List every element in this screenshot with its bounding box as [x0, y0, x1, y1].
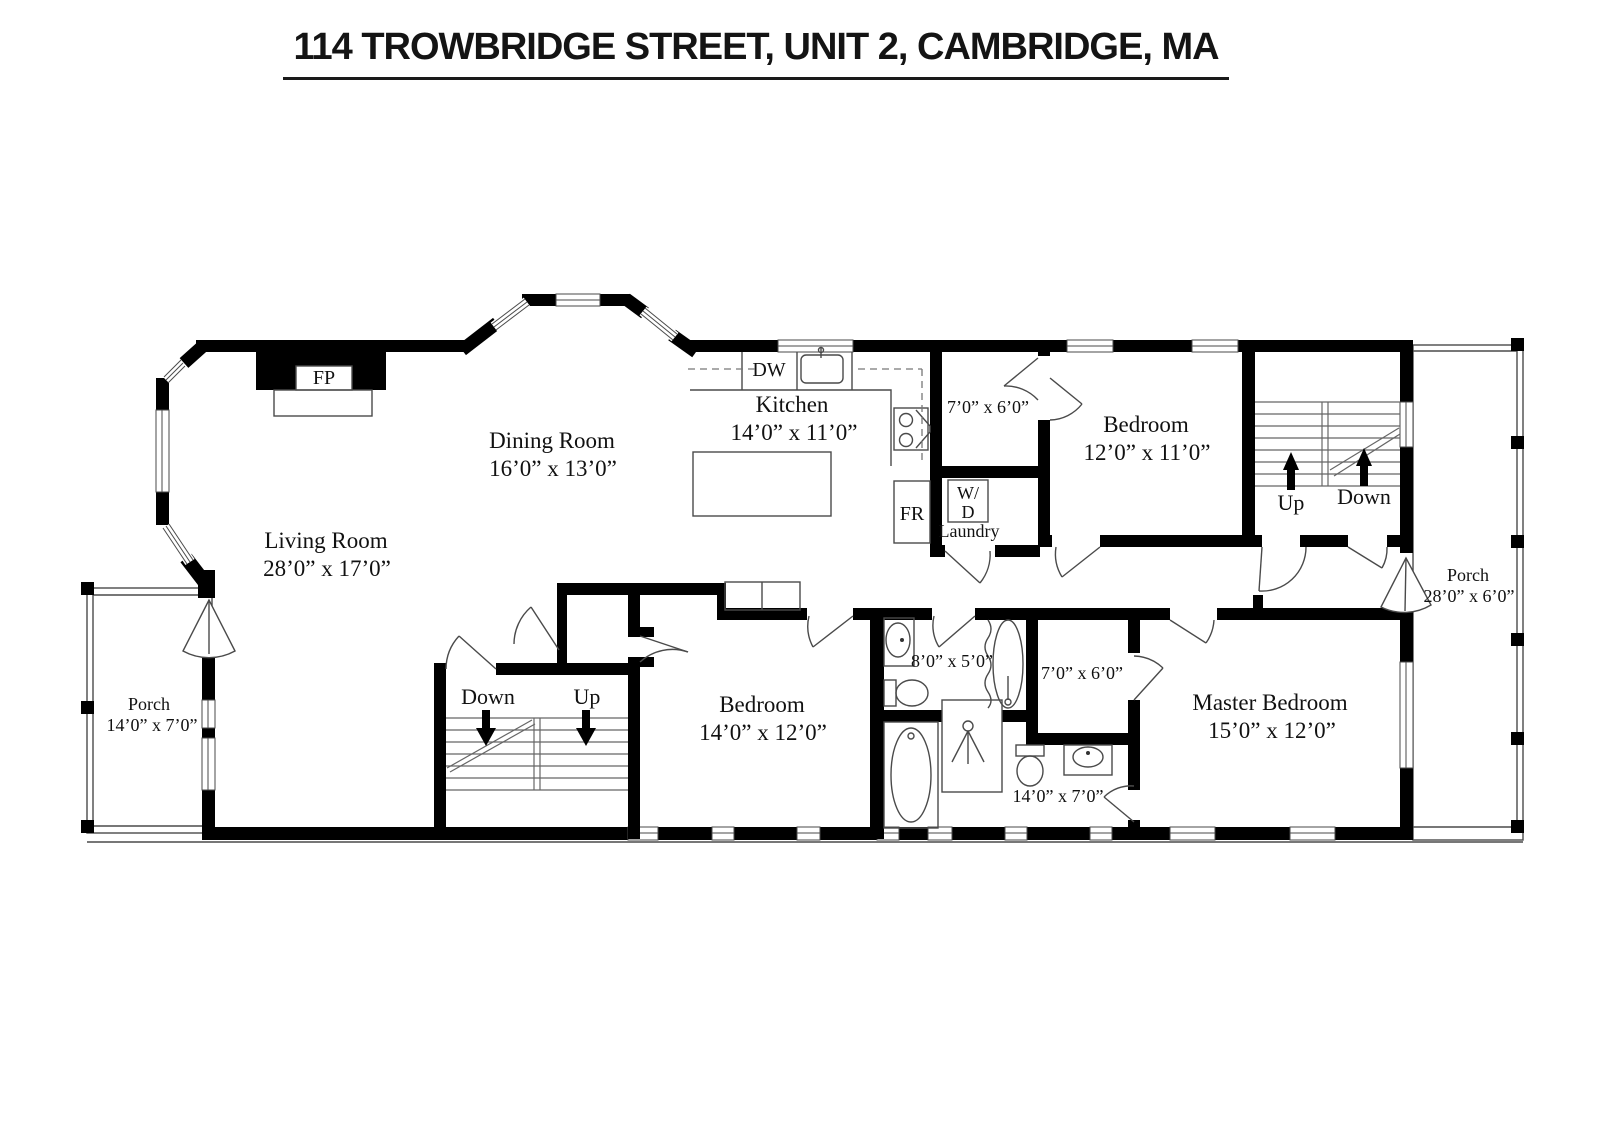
porch-post [1511, 436, 1524, 449]
hall-closet-door [514, 607, 559, 650]
porch-post [1511, 732, 1524, 745]
room-labels: Living Room 28’0” x 17’0” Dining Room 16… [107, 392, 1515, 806]
upper-closet-dims: 7’0” x 6’0” [947, 397, 1029, 417]
porch-post [1511, 633, 1524, 646]
upper-bedroom-dims: 12’0” x 11’0” [1084, 440, 1211, 465]
porch-right-label: Porch [1447, 565, 1489, 585]
master-toilet [1016, 745, 1044, 786]
laundry-door [945, 551, 990, 583]
refrigerator: FR [894, 481, 930, 543]
pantry-closets [725, 582, 800, 610]
laundry-area: W/ D Laundry [939, 480, 1000, 541]
lower-bedroom-door [808, 616, 853, 647]
up-arrow [1283, 452, 1299, 490]
dining-room-dims: 16’0” x 13’0” [489, 456, 617, 481]
master-bedroom-dims: 15’0” x 12’0” [1208, 718, 1336, 743]
bathroom-dims: 8’0” x 5’0” [911, 651, 993, 671]
washer-dryer-label-1: W/ [957, 483, 979, 503]
upper-bedroom-label: Bedroom [1103, 412, 1189, 437]
interior-walls [434, 346, 1413, 839]
stove [894, 408, 930, 450]
stairs-center: Down Up [446, 684, 628, 790]
living-room-dims: 28’0” x 17’0” [263, 556, 391, 581]
kitchen-island [693, 452, 831, 516]
fireplace: FP [256, 340, 386, 416]
stairs-upper-down-label: Down [1337, 484, 1391, 509]
fireplace-label: FP [313, 367, 335, 389]
master-closet-door [1134, 656, 1163, 700]
bath-sink [884, 618, 914, 666]
refrigerator-label: FR [900, 503, 925, 525]
lower-bedroom-dims: 14’0” x 12’0” [699, 720, 827, 745]
washer-dryer-label-2: D [962, 502, 975, 522]
porch-left-dims: 14’0” x 7’0” [107, 715, 198, 735]
stairs-center-down-label: Down [461, 684, 515, 709]
porch-post [81, 820, 94, 833]
floorplan-page: { "title": "114 TROWBRIDGE STREET, UNIT … [0, 0, 1600, 1131]
stair-landing-door [1348, 547, 1387, 568]
porch-post [1511, 820, 1524, 833]
kitchen-fixtures: DW FR [688, 348, 930, 611]
master-bathroom-dims: 14’0” x 7’0” [1013, 786, 1104, 806]
center-stair-door [446, 636, 496, 669]
living-room-label: Living Room [264, 528, 387, 553]
master-tub [884, 722, 938, 828]
dining-room-label: Dining Room [489, 428, 615, 453]
down-arrow [476, 710, 496, 746]
bathroom-door [933, 616, 975, 647]
stairs-center-up-label: Up [574, 684, 601, 709]
kitchen-dims: 14’0” x 11’0” [731, 420, 858, 445]
master-sink [1064, 745, 1112, 775]
porch-post [1511, 338, 1524, 351]
porch-left-label: Porch [128, 694, 170, 714]
bath-tub [993, 620, 1023, 708]
master-bath-door [1104, 786, 1134, 822]
upper-bedroom-door [1055, 547, 1100, 577]
master-closet-dims: 7’0” x 6’0” [1041, 663, 1123, 683]
master-bedroom-door [1170, 620, 1214, 643]
lower-bedroom-label: Bedroom [719, 692, 805, 717]
stairs-upper: Up Down [1255, 402, 1400, 515]
master-bedroom-label: Master Bedroom [1192, 690, 1347, 715]
porch-post [81, 582, 94, 595]
porch-post [1511, 535, 1524, 548]
kitchen-sink [801, 348, 843, 384]
laundry-label: Laundry [939, 521, 1000, 541]
kitchen-label: Kitchen [756, 392, 829, 417]
porch-right-dims: 28’0” x 6’0” [1424, 586, 1515, 606]
hall-stair-door [1259, 547, 1306, 591]
floorplan-svg: FP [0, 0, 1600, 1131]
bath-toilet [884, 680, 928, 706]
porch-post [81, 701, 94, 714]
stairs-upper-up-label: Up [1278, 490, 1305, 515]
dishwasher-label: DW [752, 359, 785, 381]
master-shower [942, 700, 1002, 792]
down-arrow [576, 710, 596, 746]
